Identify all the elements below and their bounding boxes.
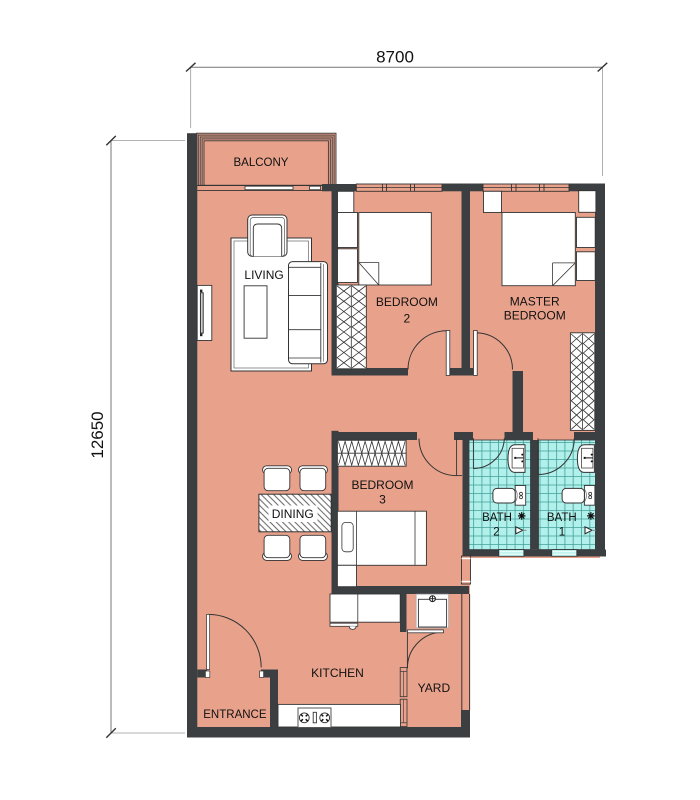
- svg-text:BALCONY: BALCONY: [234, 157, 289, 169]
- svg-text:BATH: BATH: [482, 512, 512, 524]
- svg-text:KITCHEN: KITCHEN: [311, 666, 364, 680]
- svg-text:2: 2: [404, 311, 411, 325]
- svg-text:BEDROOM: BEDROOM: [351, 478, 413, 492]
- svg-text:DINING: DINING: [272, 507, 314, 521]
- svg-text:12650: 12650: [88, 411, 107, 458]
- svg-text:BEDROOM: BEDROOM: [376, 295, 438, 309]
- svg-text:3: 3: [379, 493, 386, 507]
- svg-text:2: 2: [493, 527, 499, 539]
- svg-text:LIVING: LIVING: [244, 268, 283, 282]
- svg-text:1: 1: [559, 527, 565, 539]
- svg-text:BEDROOM: BEDROOM: [504, 308, 566, 322]
- svg-text:ENTRANCE: ENTRANCE: [203, 709, 267, 721]
- svg-text:MASTER: MASTER: [510, 294, 560, 308]
- svg-text:8700: 8700: [376, 48, 414, 67]
- svg-text:YARD: YARD: [418, 681, 451, 695]
- svg-text:BATH: BATH: [547, 512, 577, 524]
